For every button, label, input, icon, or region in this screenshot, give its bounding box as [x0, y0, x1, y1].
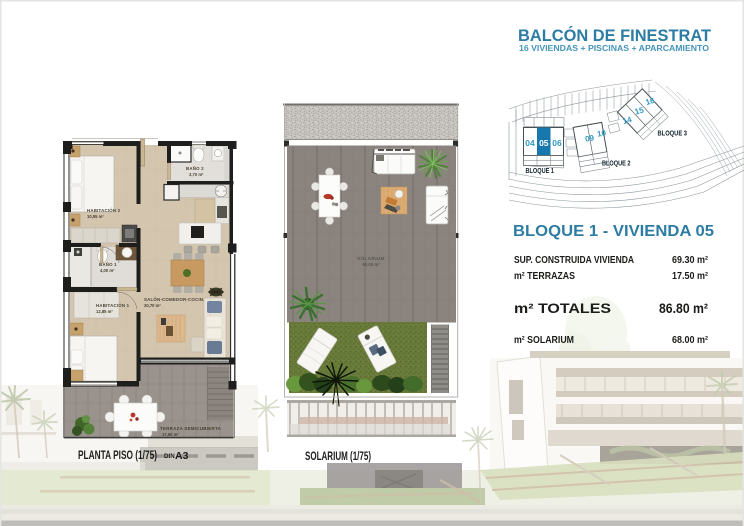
svg-text:BLOQUE 2: BLOQUE 2 [602, 159, 631, 168]
svg-text:m² TERRAZAS: m² TERRAZAS [514, 271, 575, 282]
svg-text:SUP. CONSTRUIDA VIVIENDA: SUP. CONSTRUIDA VIVIENDA [514, 255, 634, 266]
svg-text:05: 05 [539, 138, 549, 148]
svg-text:10,95 m²: 10,95 m² [87, 214, 104, 219]
svg-text:30,70 m²: 30,70 m² [144, 303, 161, 308]
svg-text:BALCÓN DE FINESTRAT: BALCÓN DE FINESTRAT [518, 26, 712, 45]
svg-text:BLOQUE 1: BLOQUE 1 [526, 166, 555, 175]
svg-text:SOLARIUM: SOLARIUM [357, 256, 385, 261]
svg-text:HABITACIÓN 2: HABITACIÓN 2 [87, 208, 121, 213]
svg-text:4,00 m²: 4,00 m² [100, 268, 115, 273]
svg-text:16 VIVIENDAS + PISCINAS + APAR: 16 VIVIENDAS + PISCINAS + APARCAMIENTO [519, 44, 709, 53]
svg-text:A3: A3 [175, 450, 189, 462]
svg-text:17.50 m²: 17.50 m² [672, 271, 709, 282]
svg-text:DIN: DIN [164, 453, 175, 460]
svg-text:17,50 m²: 17,50 m² [162, 432, 179, 437]
svg-text:m² SOLARIUM: m² SOLARIUM [514, 335, 574, 346]
svg-text:3,70 m²: 3,70 m² [189, 172, 204, 177]
svg-text:SOLARIUM (1/75): SOLARIUM (1/75) [305, 449, 371, 463]
svg-text:68,00 m²: 68,00 m² [362, 262, 380, 267]
svg-text:86.80 m²: 86.80 m² [659, 300, 708, 316]
svg-text:PLANTA PISO (1/75): PLANTA PISO (1/75) [78, 448, 157, 462]
svg-text:68.00 m²: 68.00 m² [672, 335, 709, 346]
svg-text:06: 06 [552, 138, 562, 148]
svg-text:BLOQUE 1 - VIVIENDA 05: BLOQUE 1 - VIVIENDA 05 [513, 223, 714, 240]
svg-text:12,85 m²: 12,85 m² [96, 309, 113, 314]
svg-text:TERRAZA SEMICUBIERTA: TERRAZA SEMICUBIERTA [160, 426, 222, 431]
svg-text:SALÓN-COMEDOR-COCINA: SALÓN-COMEDOR-COCINA [144, 297, 207, 302]
svg-text:m² TOTALES: m² TOTALES [514, 300, 611, 316]
svg-text:69.30 m²: 69.30 m² [672, 255, 709, 266]
svg-text:BAÑO 2: BAÑO 2 [186, 166, 204, 171]
svg-text:BLOQUE 3: BLOQUE 3 [658, 129, 688, 138]
svg-text:04: 04 [525, 138, 535, 148]
svg-text:HABITACIÓN 1: HABITACIÓN 1 [96, 303, 130, 308]
